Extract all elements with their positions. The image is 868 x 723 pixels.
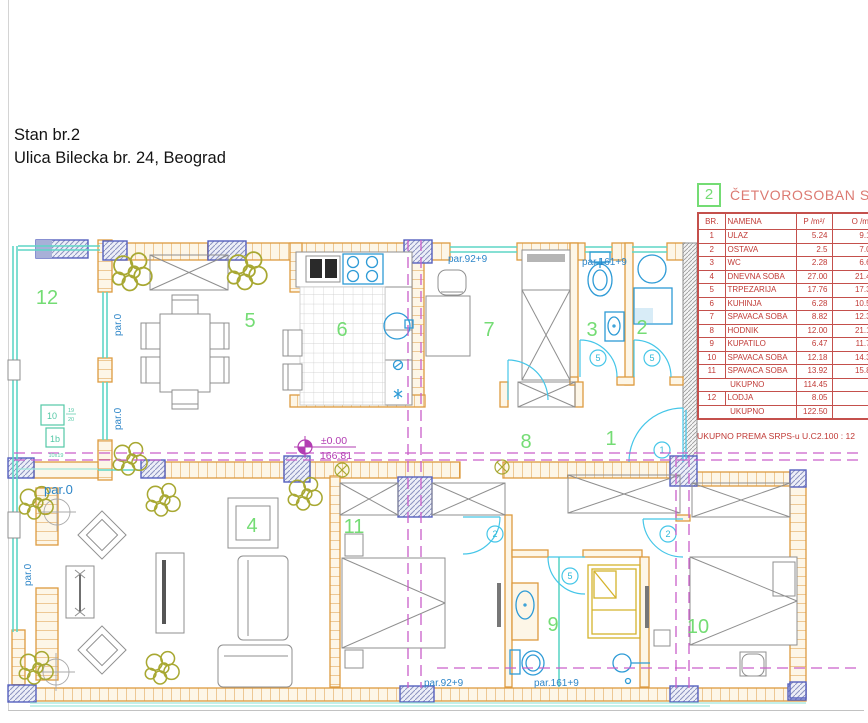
svg-text:2: 2: [665, 529, 670, 539]
room-number-6: 6: [336, 319, 347, 341]
armchair: [78, 626, 126, 674]
table-row: 10SPAVACA SOBA12.1814.33: [698, 351, 868, 365]
subtotal-row: UKUPNO114.45: [698, 378, 868, 392]
schedule-table: BR. NAMENA P /m²/ O /m¹/ 1ULAZ5.249.19 2…: [697, 212, 868, 420]
lodja-row: 12LODJA8.05-: [698, 392, 868, 406]
ref-box-a: 10: [47, 411, 57, 421]
room-number-5: 5: [244, 310, 255, 332]
schedule-footnote: UKUPNO PREMA SRPS-u U.C2.100 : 12: [697, 431, 855, 441]
room-number-4: 4: [246, 515, 257, 537]
table-row: 2OSTAVA2.57.00: [698, 243, 868, 257]
room-number-2: 2: [636, 317, 647, 339]
bedroom10-furniture: [645, 483, 797, 676]
svg-text:5: 5: [595, 353, 600, 363]
room-number-10: 10: [687, 616, 709, 638]
parapet-label: par.161+9: [582, 257, 627, 268]
door-entry: [629, 408, 686, 462]
table-row: 6KUHINJA6.2810.51: [698, 297, 868, 311]
parapet-label: par.92+9: [424, 678, 464, 689]
bath-toilet: [510, 650, 544, 675]
apartment-number-badge: 2: [697, 183, 721, 207]
tv-panel: [497, 583, 501, 627]
room-number-11: 11: [344, 516, 365, 538]
door-tag: 1: [654, 442, 670, 458]
parapet-label: par.92+9: [448, 254, 488, 265]
room-number-1: 1: [605, 428, 616, 450]
col-header-p: P /m²/: [796, 213, 832, 230]
hall-closets: [568, 475, 680, 513]
table-row: 1ULAZ5.249.19: [698, 230, 868, 244]
door-tag: 2: [660, 526, 676, 542]
room-number-7: 7: [483, 319, 494, 341]
col-header-namena: NAMENA: [725, 213, 796, 230]
door-bedroom10: [643, 519, 683, 557]
ref-box-b: 1b: [50, 434, 60, 444]
parapet-label: par.0: [44, 482, 73, 497]
double-bed: [342, 558, 445, 648]
table-header-row: BR. NAMENA P /m²/ O /m¹/: [698, 213, 868, 230]
tv-panel: [645, 586, 649, 628]
door-tag: 5: [562, 568, 578, 584]
parapet-label: par.0: [113, 313, 124, 336]
door-tag: 2: [487, 526, 503, 542]
sofa-section: [238, 556, 288, 640]
room-number-3: 3: [586, 319, 597, 341]
door-tag: 5: [590, 350, 606, 366]
shower-cabin: [588, 565, 640, 638]
col-header-br: BR.: [698, 213, 725, 230]
table-row: 5TRPEZARIJA17.7617.30: [698, 284, 868, 298]
room-number-9: 9: [547, 614, 558, 636]
table-row: 11SPAVACA SOBA13.9215.84: [698, 365, 868, 379]
ref-frac-bottom: 20: [68, 417, 74, 423]
parapet-label: par.0: [23, 563, 34, 586]
table-row: 3WC2.286.62: [698, 257, 868, 271]
storage-fixtures: [634, 255, 672, 324]
kitchen-furniture: [283, 252, 413, 405]
hatched-party-wall: [683, 243, 697, 462]
door-tag: 5: [644, 350, 660, 366]
ref-frac-top: 19: [68, 408, 74, 414]
reference-boxes: 10 19 20 1b 10x19: [41, 405, 76, 459]
svg-text:2: 2: [492, 529, 497, 539]
floor-plan-sheet: { "title": { "line1": "Stan br.2", "line…: [0, 0, 868, 723]
boiler: [638, 255, 666, 283]
ref-size: 10x19: [49, 453, 64, 459]
level-value-top: ±0.00: [321, 435, 347, 447]
schedule-header: 2 ČETVOROSOBAN S: [697, 184, 868, 206]
bathroom-fixtures: [510, 565, 650, 684]
table-row: 8HODNIK12.0021.12: [698, 324, 868, 338]
sofa-section: [218, 645, 292, 687]
svg-text:5: 5: [649, 353, 654, 363]
dining-room-furniture: [141, 255, 229, 409]
floor-lamp-table: [66, 566, 94, 618]
apartment-type-title: ČETVOROSOBAN S: [730, 187, 868, 203]
table-row: 7SPAVACA SOBA8.8212.35: [698, 311, 868, 325]
kitchen-tile-floor: [300, 287, 385, 405]
svg-text:5: 5: [567, 571, 572, 581]
wardrobe: [518, 382, 575, 407]
parapet-label: par.0: [113, 407, 124, 430]
total-row: UKUPNO122.50: [698, 405, 868, 419]
room-schedule: 2 ČETVOROSOBAN S BR. NAMENA P /m²/ O /m¹…: [697, 184, 868, 420]
tv-stand: [156, 553, 184, 633]
table-row: 9KUPATILO6.4711.78: [698, 338, 868, 352]
table-row: 4DNEVNA SOBA27.0021.41: [698, 270, 868, 284]
wardrobe: [692, 483, 790, 517]
room-number-8: 8: [520, 431, 531, 453]
level-value-bottom: 166.81: [320, 450, 352, 462]
col-header-o: O /m¹/: [832, 213, 868, 230]
room-number-12: 12: [36, 287, 58, 309]
wc-sink: [605, 312, 624, 341]
parapet-label: par.161+9: [534, 678, 579, 689]
armchair: [78, 511, 126, 559]
